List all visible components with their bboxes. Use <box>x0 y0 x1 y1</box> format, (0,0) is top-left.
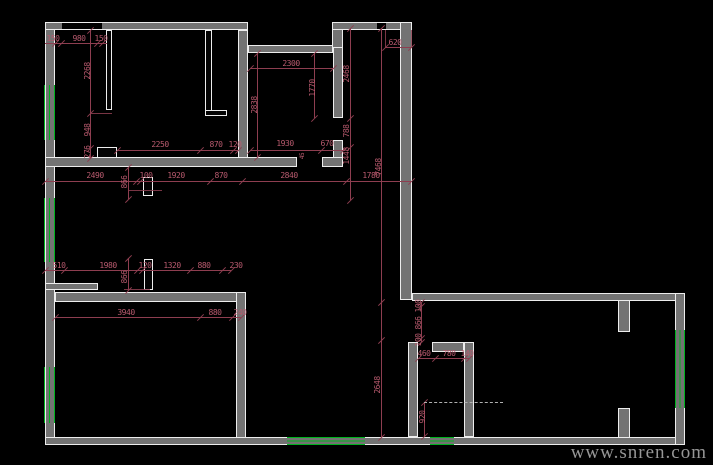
wall-segment <box>322 157 343 167</box>
dimension-label: 880 <box>198 262 211 270</box>
wall-segment <box>45 437 685 445</box>
dimension-label: 948 <box>84 124 92 137</box>
dimension-label: 780 <box>443 350 456 358</box>
dimension-label: 1448 <box>343 147 351 164</box>
wall-segment <box>618 300 630 332</box>
dimension-label: 150 <box>95 35 108 43</box>
dimension-label: 2250 <box>151 141 168 149</box>
dimension-label: 150 <box>47 35 60 43</box>
dimension-label: 45 <box>299 153 307 159</box>
cad-floorplan-canvas: www.snren.com 15098015022689482762250870… <box>0 0 713 465</box>
dimension-label: 7468 <box>375 158 383 175</box>
dimension-line <box>55 317 241 318</box>
wall-segment <box>45 157 297 167</box>
wall-segment <box>400 22 412 300</box>
tick-mark <box>125 196 132 203</box>
dimension-label: 120 <box>139 262 152 270</box>
extension-line <box>90 113 112 114</box>
dimension-label: 1930 <box>276 140 293 148</box>
dimension-line <box>385 47 411 48</box>
dimension-label: 866 <box>121 176 129 189</box>
dimension-line <box>250 150 343 151</box>
dimension-label: 230 <box>230 262 243 270</box>
dimension-label: 620 <box>389 39 402 47</box>
window-marker <box>675 330 685 408</box>
watermark-text: www.snren.com <box>571 442 707 464</box>
dimension-label: 2838 <box>251 96 259 113</box>
dimension-label: 100 <box>415 334 423 347</box>
window-marker <box>287 437 365 445</box>
dimension-label: 2268 <box>84 62 92 79</box>
dimension-label: 2490 <box>86 172 103 180</box>
dimension-line <box>45 181 411 182</box>
dimension-label: 1980 <box>99 262 116 270</box>
wall-segment <box>408 342 418 437</box>
dimension-label: 3940 <box>117 309 134 317</box>
dimension-label: 140 <box>461 350 474 358</box>
dimension-label: 2300 <box>282 60 299 68</box>
dimension-line <box>350 28 351 200</box>
wall-segment <box>248 45 333 53</box>
wall-segment <box>412 293 685 301</box>
door-jamb-marker <box>205 30 212 113</box>
dimension-label: 120 <box>229 141 242 149</box>
dimension-label: 866 <box>121 271 129 284</box>
dimension-label: 920 <box>419 411 427 424</box>
extension-line <box>128 190 162 191</box>
dimension-label: 100 <box>415 300 423 313</box>
extension-line <box>385 30 386 48</box>
dimension-label: 788 <box>343 125 351 138</box>
dimension-label: 240 <box>234 309 247 317</box>
dimension-label: 276 <box>84 146 92 159</box>
dimension-label: 1920 <box>167 172 184 180</box>
dimension-label: 670 <box>321 140 334 148</box>
dimension-line <box>117 150 238 151</box>
dimension-label: 100 <box>140 172 153 180</box>
dimension-label: 866 <box>415 317 423 330</box>
window-marker <box>44 85 55 140</box>
dimension-label: 2840 <box>280 172 297 180</box>
dimension-label: 1770 <box>309 79 317 96</box>
wall-segment <box>618 408 630 438</box>
dimension-line <box>418 358 469 359</box>
window-marker <box>44 367 55 423</box>
window-marker <box>44 198 55 262</box>
door-jamb-marker <box>205 110 227 116</box>
dimension-label: 870 <box>215 172 228 180</box>
extension-line <box>124 289 150 290</box>
dimension-label: 980 <box>73 35 86 43</box>
dimension-label: 1320 <box>163 262 180 270</box>
dimension-line <box>90 30 91 158</box>
wall-opening <box>62 22 102 30</box>
dimension-label: 2468 <box>343 65 351 82</box>
extension-line <box>411 30 412 48</box>
window-marker <box>430 437 454 445</box>
wall-segment <box>45 283 98 290</box>
dimension-label: 460 <box>418 350 431 358</box>
dimension-line <box>250 68 333 69</box>
dimension-label: 510 <box>53 262 66 270</box>
dimension-label: 2648 <box>374 376 382 393</box>
dimension-label: 870 <box>210 141 223 149</box>
wall-segment <box>55 292 238 302</box>
dashed-guide-line <box>424 402 503 403</box>
tick-mark <box>347 197 354 204</box>
dimension-label: 880 <box>209 309 222 317</box>
tick-mark <box>311 115 318 122</box>
